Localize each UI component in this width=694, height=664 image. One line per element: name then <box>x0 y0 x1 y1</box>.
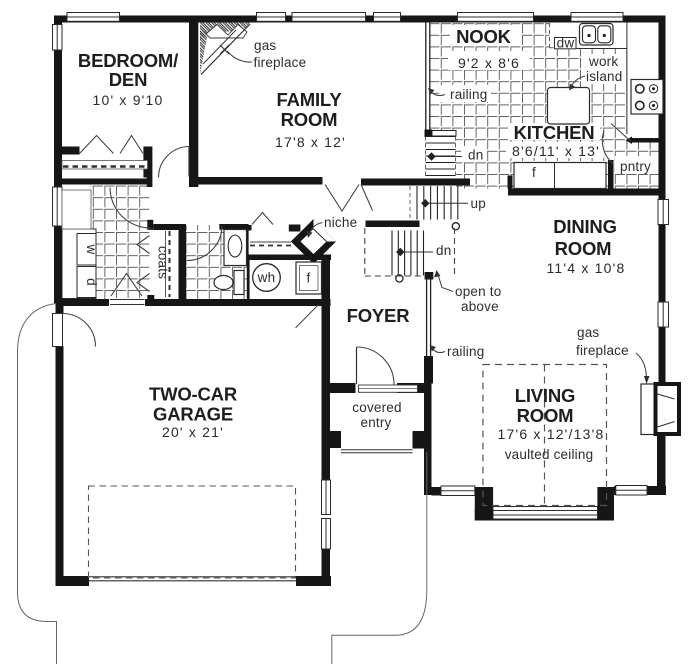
svg-text:niche: niche <box>324 215 357 230</box>
svg-text:coats: coats <box>156 246 171 279</box>
svg-text:up: up <box>471 196 486 211</box>
svg-text:NOOK: NOOK <box>456 26 512 47</box>
svg-text:DINING: DINING <box>553 216 617 237</box>
svg-text:dn: dn <box>468 148 483 163</box>
svg-text:dw: dw <box>557 35 575 50</box>
svg-text:17'6 x 12'/13'8: 17'6 x 12'/13'8 <box>498 426 605 442</box>
svg-text:ROOM: ROOM <box>555 238 612 259</box>
svg-text:gas: gas <box>254 38 276 53</box>
svg-text:w: w <box>84 244 99 255</box>
svg-text:railing: railing <box>450 87 487 102</box>
svg-text:TWO-CAR: TWO-CAR <box>149 384 237 405</box>
svg-text:work: work <box>588 54 618 69</box>
svg-text:17'8 x 12': 17'8 x 12' <box>275 134 346 150</box>
svg-text:gas: gas <box>577 325 599 340</box>
svg-text:LIVING: LIVING <box>515 385 575 406</box>
svg-text:covered: covered <box>352 400 401 415</box>
svg-text:11'4 x 10'8: 11'4 x 10'8 <box>546 260 625 276</box>
svg-text:d: d <box>84 278 99 286</box>
svg-text:8'6/11' x 13': 8'6/11' x 13' <box>512 143 600 159</box>
svg-text:DEN: DEN <box>109 69 147 90</box>
svg-text:fireplace: fireplace <box>576 343 629 358</box>
svg-text:KITCHEN: KITCHEN <box>514 122 595 143</box>
svg-text:above: above <box>461 299 499 314</box>
svg-text:dn: dn <box>436 243 451 258</box>
svg-text:9'2 x 8'6: 9'2 x 8'6 <box>458 55 520 71</box>
svg-text:pntry: pntry <box>620 159 651 174</box>
svg-text:FAMILY: FAMILY <box>277 89 343 110</box>
svg-text:FOYER: FOYER <box>347 305 410 326</box>
svg-text:ROOM: ROOM <box>517 405 574 426</box>
svg-text:BEDROOM/: BEDROOM/ <box>78 50 178 71</box>
svg-text:f: f <box>532 165 536 180</box>
svg-text:10' x 9'10: 10' x 9'10 <box>92 92 163 108</box>
svg-text:wh: wh <box>257 270 276 285</box>
svg-text:fireplace: fireplace <box>254 55 307 70</box>
svg-text:entry: entry <box>360 415 391 430</box>
svg-text:20' x 21': 20' x 21' <box>162 424 224 440</box>
svg-text:f: f <box>307 271 311 286</box>
svg-text:GARAGE: GARAGE <box>153 404 233 425</box>
svg-text:open to: open to <box>455 284 501 299</box>
svg-text:railing: railing <box>447 344 484 359</box>
svg-text:ROOM: ROOM <box>281 109 338 130</box>
svg-text:island: island <box>586 69 622 84</box>
svg-text:vaulted ceiling: vaulted ceiling <box>505 447 594 462</box>
